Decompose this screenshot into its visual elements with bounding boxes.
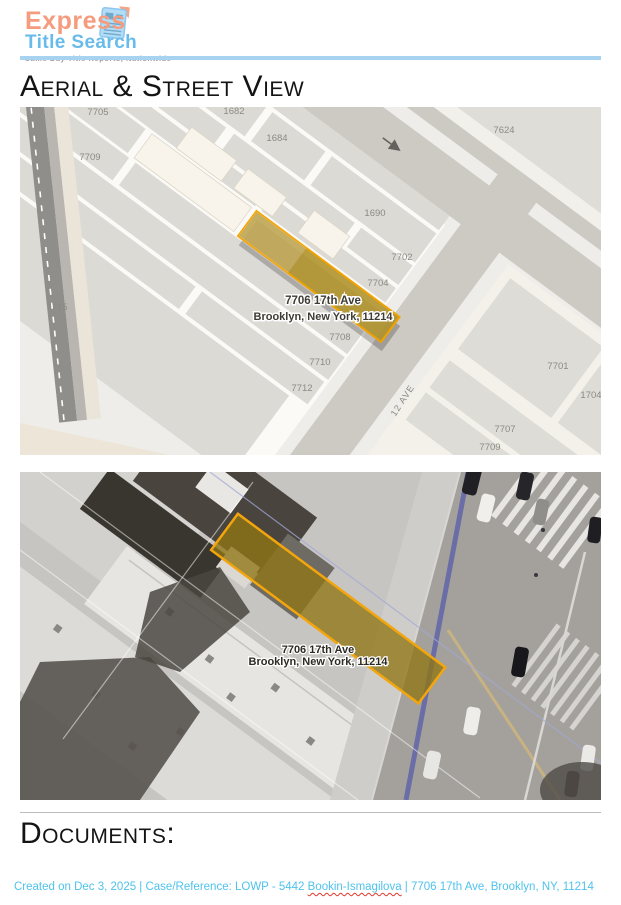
brand-name-express: Express xyxy=(25,9,172,34)
footer-case-name: Bookin-Ismagilova xyxy=(308,881,402,893)
parcel-number-label: 1682 xyxy=(223,107,244,117)
parcel-number-label: 7710 xyxy=(309,357,330,368)
parcel-number-label: 7715 xyxy=(46,302,67,313)
subject-address-line2: Brooklyn, New York, 11214 xyxy=(249,656,389,668)
report-footer: Created on Dec 3, 2025 | Case/Reference:… xyxy=(14,881,614,893)
parcel-number-label: 7709 xyxy=(479,442,500,453)
parcel-number-label: 7701 xyxy=(547,361,568,372)
parcel-number-label: 7707 xyxy=(494,424,515,435)
brand-name-title-search: Title Search xyxy=(25,33,172,52)
parcel-map: 12 AVE 7705 1682 7709 1684 1690 7702 770… xyxy=(20,107,601,455)
subject-address-line2: Brooklyn, New York, 11214 xyxy=(254,311,394,323)
subject-address-line1: 7706 17th Ave xyxy=(285,295,361,307)
brand-logo: Express Title Search Same Day Title Repo… xyxy=(25,9,172,63)
parcel-number-label: 7705 xyxy=(87,107,108,118)
parcel-number-label: 1704 xyxy=(580,390,601,401)
footer-address: | 7706 17th Ave, Brooklyn, NY, 11214 xyxy=(402,881,594,893)
parcel-number-label: 7702 xyxy=(391,252,412,263)
parcel-number-label: 7709 xyxy=(79,152,100,163)
footer-created-case: Created on Dec 3, 2025 | Case/Reference:… xyxy=(14,881,308,893)
parcel-number-label: 1690 xyxy=(364,208,385,219)
title-report-page: Express Title Search Same Day Title Repo… xyxy=(0,0,621,905)
parcel-number-label: 7624 xyxy=(493,125,514,136)
parcel-number-label: 7708 xyxy=(329,332,350,343)
section-heading-documents: Documents: xyxy=(20,817,175,851)
pedestrian xyxy=(534,573,538,577)
parcel-number-label: 1684 xyxy=(266,133,287,144)
subject-address-line1: 7706 17th Ave xyxy=(282,644,355,656)
section-heading-aerial-street-view: Aerial & Street View xyxy=(20,70,304,104)
parcel-number-label: 7704 xyxy=(367,278,388,289)
header-rule xyxy=(20,56,601,60)
parcel-number-label: 7712 xyxy=(291,383,312,394)
aerial-satellite-view: 7706 17th Ave Brooklyn, New York, 11214 xyxy=(20,472,601,800)
pedestrian xyxy=(541,528,545,532)
documents-divider xyxy=(20,812,601,813)
